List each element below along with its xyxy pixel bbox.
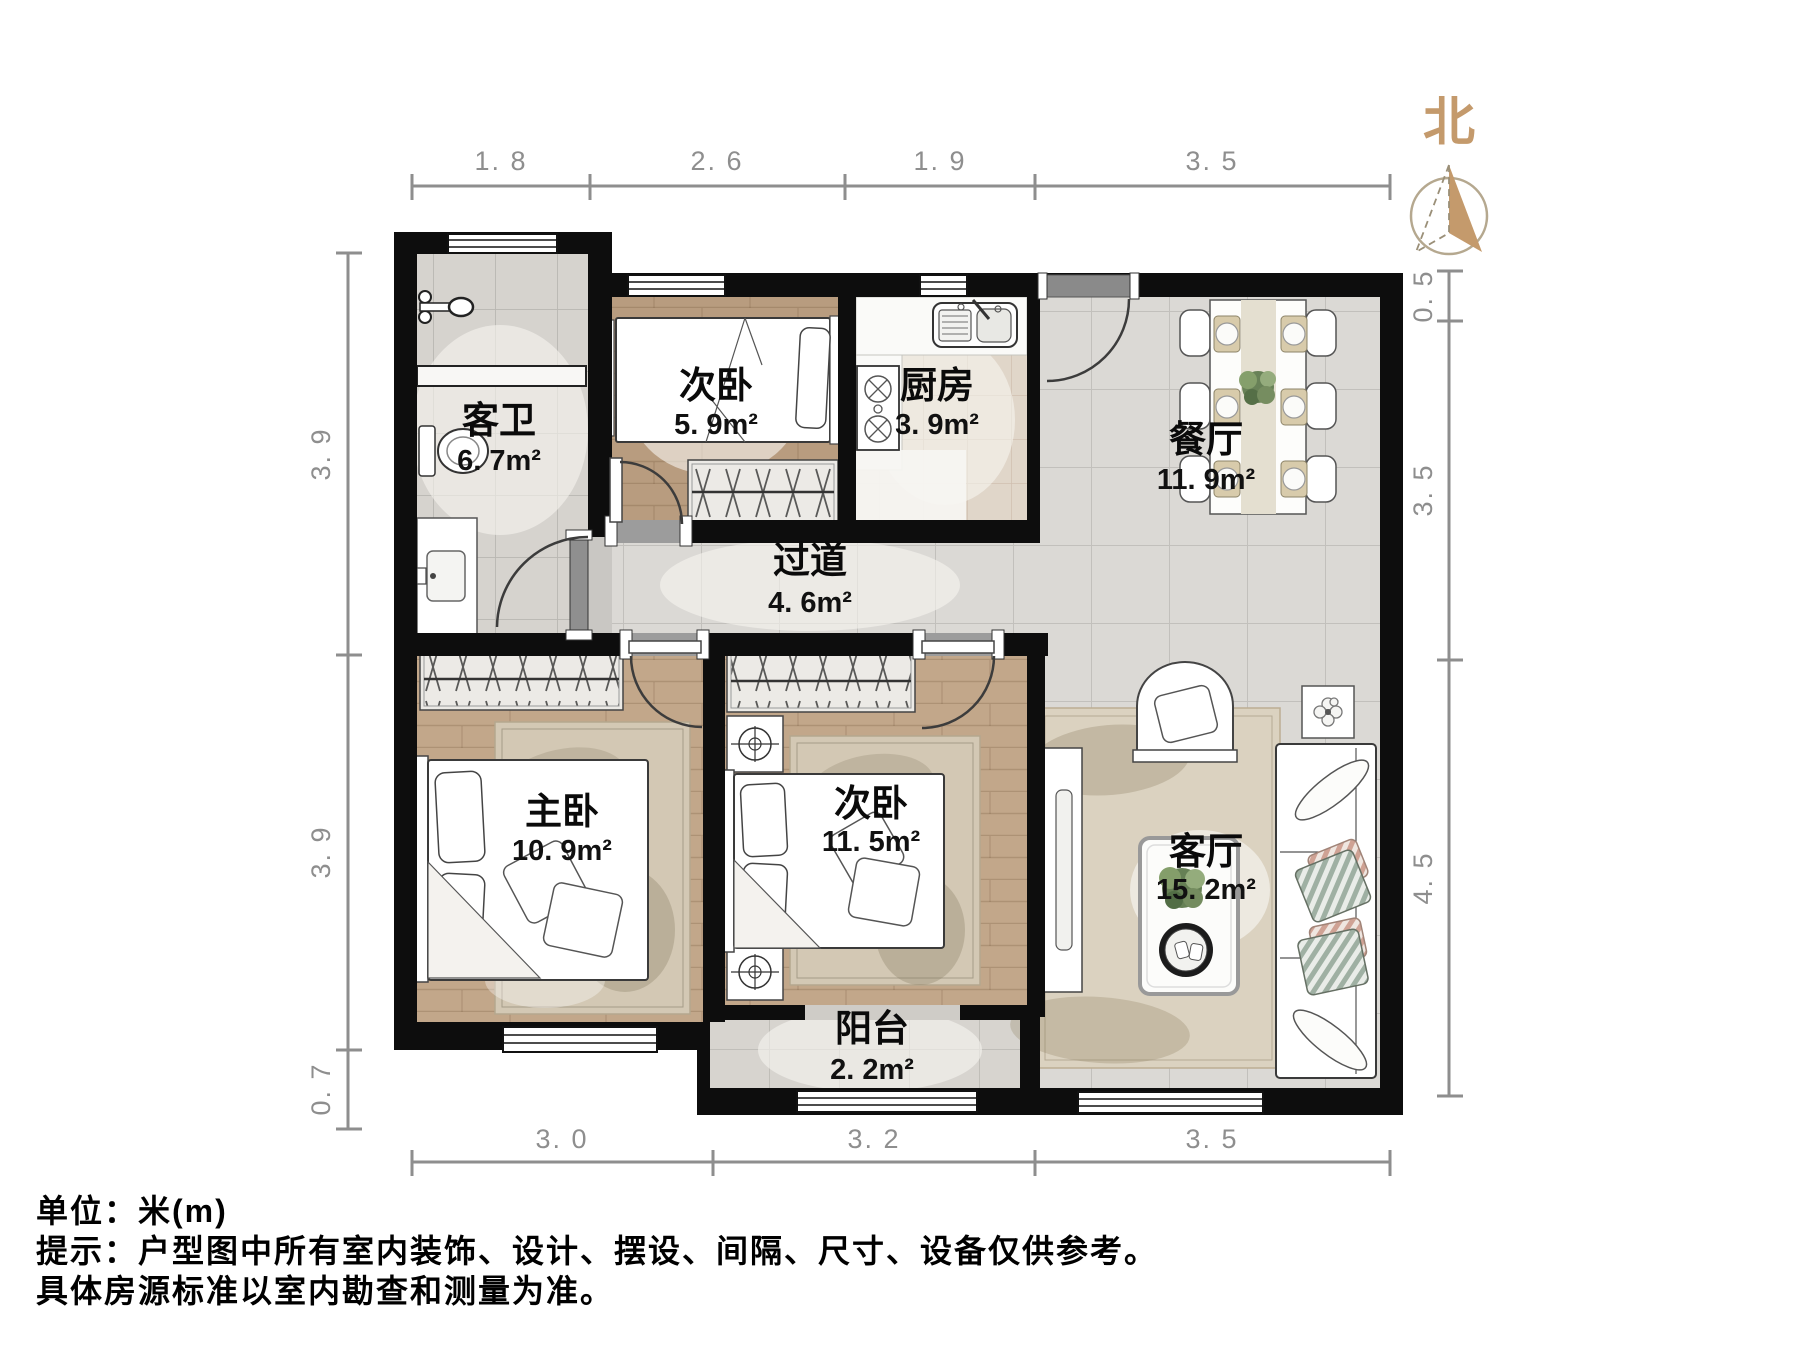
dim-left: [336, 253, 362, 1129]
room-label-hallway: 过道: [773, 540, 847, 581]
table-plant-icon: [1239, 371, 1276, 405]
window-bedroom-top: [628, 275, 725, 296]
window-living: [1078, 1092, 1263, 1113]
room-area-bedroom-top: 5. 9m²: [674, 409, 758, 441]
dim-right-0: 0. 5: [1408, 269, 1438, 322]
wardrobe: [727, 650, 915, 712]
dim-left-1: 3. 9: [306, 825, 336, 878]
wardrobe: [688, 460, 838, 525]
room-area-master: 10. 9m²: [512, 835, 612, 867]
room-label-bedroom-top: 次卧: [679, 365, 753, 406]
room-area-hallway: 4. 6m²: [768, 587, 852, 619]
room-area-bathroom: 6. 7m²: [457, 445, 541, 477]
tray-icon: [1159, 923, 1213, 977]
room-area-balcony: 2. 2m²: [830, 1054, 914, 1086]
floorplan-page: 客卫 6. 7m² 次卧 5. 9m² 厨房 3. 9m² 餐厅 11. 9m²…: [0, 0, 1794, 1346]
window-master: [503, 1027, 657, 1052]
stove-icon: [857, 366, 899, 450]
dim-right-1: 3. 5: [1408, 463, 1438, 516]
dim-right-2: 4. 5: [1408, 851, 1438, 904]
room-label-bedroom-bottom: 次卧: [834, 783, 908, 824]
dim-top-0: 1. 8: [474, 146, 527, 176]
shower-partition: [417, 366, 586, 386]
kitchen-sink-icon: [933, 300, 1017, 347]
room-area-kitchen: 3. 9m²: [895, 409, 979, 441]
armchair: [1133, 662, 1237, 762]
vanity-sink-icon: [417, 518, 477, 638]
dim-bottom-1: 3. 2: [847, 1124, 900, 1154]
floorplan-canvas: 客卫 6. 7m² 次卧 5. 9m² 厨房 3. 9m² 餐厅 11. 9m²…: [0, 0, 1794, 1346]
window-balcony: [797, 1091, 977, 1112]
room-label-bathroom: 客卫: [462, 400, 536, 441]
dim-top-2: 1. 9: [913, 146, 966, 176]
tip-line-1: 提示：户型图中所有室内装饰、设计、摆设、间隔、尺寸、设备仅供参考。: [36, 1233, 1158, 1269]
wardrobe: [420, 648, 623, 710]
room-label-master: 主卧: [525, 791, 599, 832]
window-bathroom: [448, 234, 557, 253]
dim-bottom-0: 3. 0: [535, 1124, 588, 1154]
sofa: [1276, 744, 1376, 1079]
north-label: 北: [1423, 94, 1475, 152]
bed: [720, 770, 944, 952]
room-area-living: 15. 2m²: [1156, 874, 1256, 906]
north-compass: 北: [1411, 94, 1487, 254]
nightstand-icon: [727, 716, 783, 772]
room-label-balcony: 阳台: [835, 1008, 909, 1049]
dim-right: [1437, 271, 1463, 1096]
room-label-kitchen: 厨房: [900, 365, 974, 406]
bed: [414, 756, 648, 982]
room-label-dining: 餐厅: [1169, 419, 1243, 460]
window-kitchen: [920, 275, 967, 296]
dim-top-3: 3. 5: [1185, 146, 1238, 176]
footer-notes: 单位：米(m) 提示：户型图中所有室内装饰、设计、摆设、间隔、尺寸、设备仅供参考…: [36, 1193, 1158, 1309]
room-area-bedroom-bottom: 11. 5m²: [822, 826, 921, 858]
side-table-plant-icon: [1302, 686, 1354, 738]
dim-top-1: 2. 6: [690, 146, 743, 176]
unit-note: 单位：米(m): [36, 1193, 228, 1229]
compass-needle-icon: [1449, 165, 1482, 252]
tip-line-2: 具体房源标准以室内勘查和测量为准。: [36, 1273, 614, 1309]
room-label-living: 客厅: [1169, 831, 1243, 872]
dim-top: [412, 174, 1390, 200]
dim-left-2: 0. 7: [306, 1062, 336, 1115]
room-area-dining: 11. 9m²: [1157, 464, 1256, 496]
dim-bottom-2: 3. 5: [1185, 1124, 1238, 1154]
nightstand-icon: [727, 944, 783, 1000]
dim-left-0: 3. 9: [306, 427, 336, 480]
